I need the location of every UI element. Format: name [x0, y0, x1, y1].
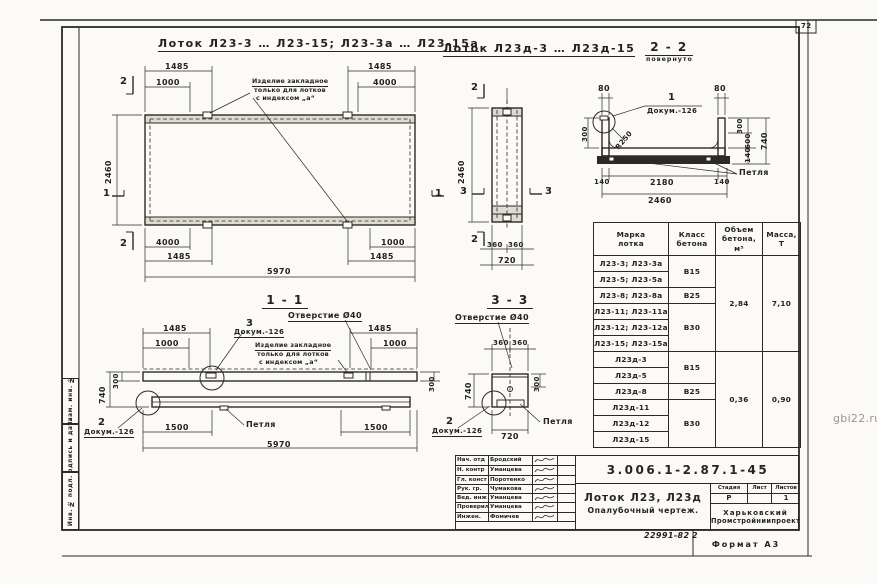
dim-label: 5970: [267, 440, 291, 449]
dim-label: 740: [760, 132, 769, 150]
doc-number: 3.006.1-2.87.1-45: [576, 456, 800, 484]
table-cell-class: В25: [669, 288, 716, 304]
signature-squiggle: [534, 466, 556, 474]
col-header-class: Класс бетона: [669, 223, 716, 256]
table-cell-mark: Л23-15; Л23-15а: [594, 336, 669, 352]
order-sheet: 2: [692, 531, 698, 540]
doc-ref-label: Докум.-126: [647, 107, 697, 115]
stage-label: Стадия: [711, 484, 748, 493]
signature-name: Уманцева: [489, 503, 533, 511]
table-cell-mark: Л23д-15: [594, 432, 669, 448]
table-cell-mark: Л23д-8: [594, 384, 669, 400]
col-header-volume: Объем бетона, м³: [716, 223, 763, 256]
table-cell-mark: Л23-3; Л23-3а: [594, 256, 669, 272]
dim-label: 5970: [267, 267, 291, 276]
section-mark: 2: [471, 82, 478, 93]
table-cell-mark: Л23-11; Л23-11а: [594, 304, 669, 320]
dim-label: 80: [714, 84, 726, 93]
dim-label: 740: [98, 386, 107, 404]
section-mark: 2: [471, 234, 478, 245]
signature-name: Чумакова: [489, 485, 533, 493]
sheets-label: Листов: [772, 484, 800, 493]
dim-label: 140: [594, 178, 610, 186]
signature-name: Фомичев: [489, 513, 533, 521]
embed-note-line2: только для лотков: [254, 87, 326, 94]
title-block: Нач. отд Бродский Н. контр Уманцева Гл. …: [455, 455, 799, 530]
signature-name: Бродский: [489, 456, 533, 465]
table-cell-mark: Л23-12; Л23-12а: [594, 320, 669, 336]
format-label: Формат А3: [693, 540, 799, 549]
detail-callout: 2: [446, 416, 453, 427]
dim-label: 300: [112, 373, 120, 389]
drawing-title-line1: Лоток Л23, Л23д: [576, 492, 710, 504]
table-cell-mark: Л23д-5: [594, 368, 669, 384]
section-mark: 2: [120, 238, 127, 249]
signature-squiggle: [534, 456, 556, 464]
dim-label: 1485: [167, 252, 191, 261]
detail-callout: 1: [668, 92, 675, 103]
drawing-title-line2: Опалубочный чертеж.: [576, 506, 710, 515]
signature-role: Н. контр: [456, 466, 489, 474]
section-mark: 1: [435, 188, 442, 199]
col-header-mark: Марка лотка: [594, 223, 669, 256]
dim-label: 360: [508, 241, 524, 249]
dim-label: 300: [581, 126, 589, 142]
hole-label: Отверстие Ø40: [288, 311, 362, 322]
stage-block: Стадия Лист Листов Р 1 Харьковский Промс…: [711, 484, 800, 531]
dim-label: 360: [512, 339, 528, 347]
org-name-line1: Харьковский: [711, 508, 800, 517]
dim-label: 140: [744, 147, 752, 163]
signature-squiggle: [534, 503, 556, 511]
dim-label: 1485: [165, 62, 189, 71]
stage-value: Р: [711, 494, 748, 503]
section-mark: 3: [460, 186, 467, 197]
signature-table: Нач. отд Бродский Н. контр Уманцева Гл. …: [456, 456, 576, 531]
sheets-value: 1: [772, 494, 800, 503]
dim-label: 720: [501, 432, 519, 441]
stamp-inv-podl: Инв. № подл.: [62, 472, 79, 530]
dim-label: 1000: [383, 339, 407, 348]
table-cell-volume: 0,36: [716, 352, 763, 448]
dim-label: 80: [598, 84, 610, 93]
detail-callout: 2: [98, 417, 105, 428]
embed-note-line1: Изделие закладное: [255, 342, 331, 351]
section-mark: 1: [103, 188, 110, 199]
sheet-label: Лист: [748, 484, 772, 493]
stamp-inv-podl-label: Инв. № подл.: [68, 475, 74, 526]
hole-label: Отверстие Ø40: [455, 313, 529, 324]
dim-label: 1500: [364, 423, 388, 432]
section-3-3-title: 3 - 3: [487, 293, 533, 309]
signature-role: Нач. отд: [456, 456, 489, 465]
dim-label: 360: [493, 339, 509, 347]
drawing-title-cell: Лоток Л23, Л23д Опалубочный чертеж.: [576, 484, 711, 531]
embed-note-line3: с индексом „а“: [259, 359, 318, 366]
table-cell-class: В30: [669, 304, 716, 352]
doc-ref-label: Докум.-126: [84, 428, 134, 438]
dim-label: 4000: [156, 238, 180, 247]
embed-note-line3: с индексом „а“: [256, 95, 315, 102]
loop-label: Петля: [543, 417, 573, 426]
dim-label: 1000: [155, 339, 179, 348]
dim-label: 1485: [368, 324, 392, 333]
table-cell-class: В15: [669, 352, 716, 384]
signature-name: Уманцева: [489, 466, 533, 474]
table-cell-mark: Л23-8; Л23-8а: [594, 288, 669, 304]
dim-label: 1000: [156, 78, 180, 87]
dim-label: 300: [533, 376, 541, 392]
signature-squiggle: [534, 485, 556, 493]
embed-note-line1: Изделие закладное: [252, 78, 328, 87]
loop-label: Петля: [246, 420, 276, 429]
embed-note-line2: только для лотков: [257, 351, 329, 358]
dim-label: 740: [464, 382, 473, 400]
signature-role: Рук. гр.: [456, 485, 489, 493]
dim-label: 2460: [104, 160, 113, 184]
loop-label: Петля: [739, 168, 769, 177]
signature-role: Инжен.: [456, 513, 489, 521]
table-cell-mark: Л23д-3: [594, 352, 669, 368]
narrow-view-lines: [468, 84, 542, 270]
table-cell-mark: Л23-5; Л23-5а: [594, 272, 669, 288]
dim-label: 1485: [368, 62, 392, 71]
materials-table: Марка лотка Класс бетона Объем бетона, м…: [593, 222, 801, 448]
dim-label: 360: [487, 241, 503, 249]
signature-role: Проверил: [456, 503, 489, 511]
signature-role: Вед. инж: [456, 494, 489, 502]
doc-ref-label: Докум.-126: [432, 427, 482, 437]
dim-label: 1500: [165, 423, 189, 432]
dim-label: 140: [714, 178, 730, 186]
table-cell-mark: Л23д-12: [594, 416, 669, 432]
dim-label: 1485: [163, 324, 187, 333]
dim-label: 300: [736, 118, 744, 134]
main-title-middle: Лоток Л23д-3 … Л23д-15: [443, 42, 635, 57]
section-2-2-subtitle: повернуто: [646, 56, 693, 63]
table-cell-volume: 2,84: [716, 256, 763, 352]
dim-label: 4000: [373, 78, 397, 87]
dim-label: 300: [428, 376, 436, 392]
dim-label: 2460: [457, 160, 466, 184]
doc-ref-label: Докум.-126: [234, 328, 284, 338]
table-cell-mark: Л23д-11: [594, 400, 669, 416]
dim-label: 720: [498, 256, 516, 265]
dim-label: 2460: [648, 196, 672, 205]
table-cell-class: В30: [669, 400, 716, 448]
dim-label: 1000: [381, 238, 405, 247]
signature-squiggle: [534, 476, 556, 484]
main-title-left: Лоток Л23-3 … Л23-15; Л23-3а … Л23-15а: [158, 37, 479, 52]
signature-squiggle: [534, 513, 556, 521]
signature-name: Поротенко: [489, 476, 533, 484]
table-cell-class: В25: [669, 384, 716, 400]
section-mark: 2: [120, 76, 127, 87]
stamp-podpis-data-label: Подпись и дата: [68, 417, 74, 478]
section-mark: 3: [545, 186, 552, 197]
sheet-number: 72: [801, 22, 812, 30]
dim-label: 2180: [650, 178, 674, 187]
table-cell-mass: 7,10: [763, 256, 801, 352]
org-name-line2: Промстройниипроект: [711, 517, 800, 525]
signature-squiggle: [534, 494, 556, 502]
table-cell-mass: 0,90: [763, 352, 801, 448]
signature-role: Гл. конст: [456, 476, 489, 484]
signature-name: Уманцева: [489, 494, 533, 502]
stamp-podpis-data: Подпись и дата: [62, 424, 79, 472]
dim-label: 1485: [370, 252, 394, 261]
table-cell-class: В15: [669, 256, 716, 288]
section-1-1-title: 1 - 1: [262, 293, 308, 309]
order-number: 22991-82: [644, 531, 690, 540]
drawing-sheet: 72 gbi22.ru 22991-82 2 Формат А3 Лоток Л…: [0, 0, 877, 584]
sheet-value: [748, 494, 772, 503]
section-2-2-title: 2 - 2: [645, 40, 693, 56]
watermark: gbi22.ru: [833, 412, 877, 425]
col-header-mass: Масса, Т: [763, 223, 801, 256]
